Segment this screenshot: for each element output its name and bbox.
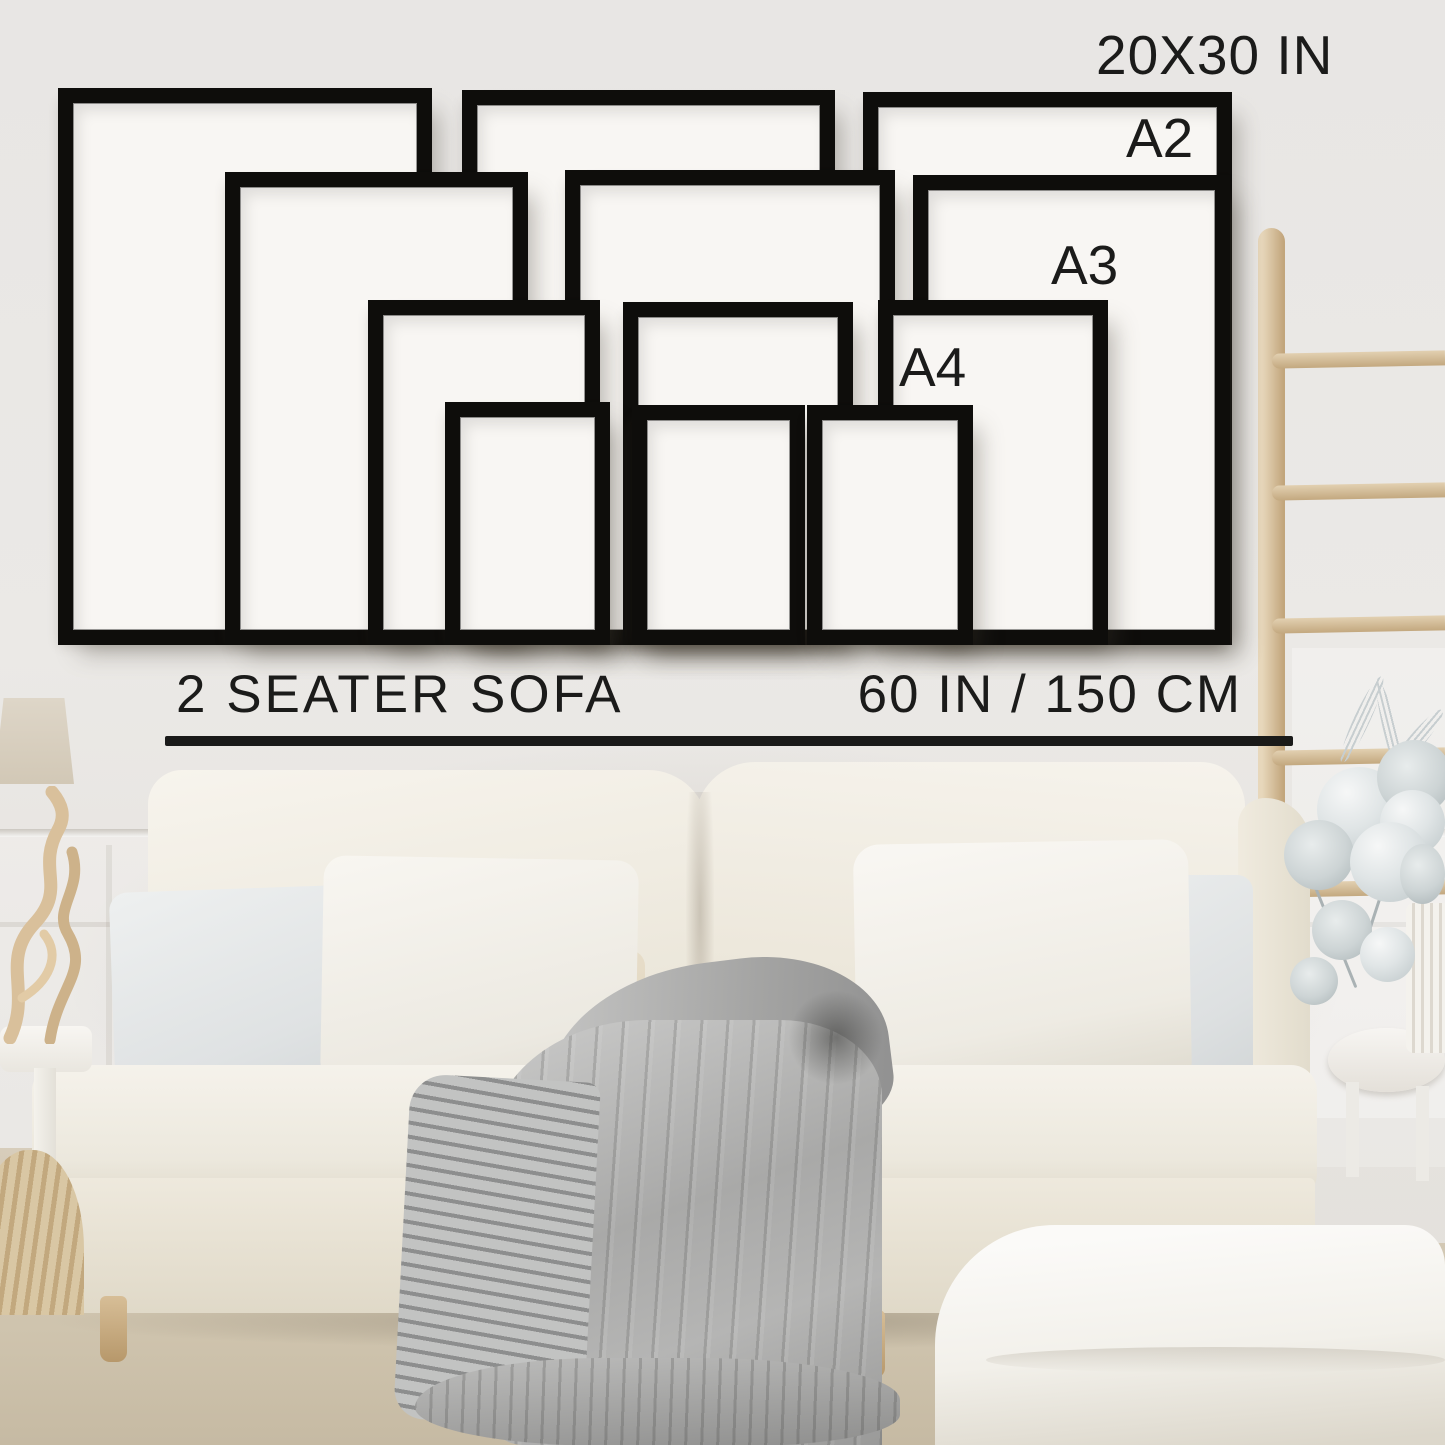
scale-divider-line	[165, 736, 1293, 746]
ottoman-cushion	[935, 1225, 1445, 1445]
throw-blanket-fold-shadow	[788, 990, 883, 1085]
frame-a4-middle	[632, 405, 805, 645]
pillow-white-right	[853, 839, 1192, 1093]
floor-lamp-shade	[0, 698, 74, 784]
frame-a4-right	[807, 405, 973, 645]
sofa-width-label: 60 IN / 150 CM	[858, 668, 1242, 721]
flower-arrangement	[1262, 672, 1445, 1072]
drooping-bloom	[1290, 957, 1338, 1005]
ladder-rung	[1272, 350, 1445, 368]
size-label-20x30: 20X30 IN	[1096, 28, 1333, 83]
size-label-a4: A4	[899, 340, 966, 395]
driftwood-sculpture	[0, 786, 124, 1044]
hydrangea-bloom	[1284, 820, 1354, 890]
throw-blanket-pile	[415, 1358, 900, 1445]
eucalyptus-leaf	[1400, 844, 1445, 904]
ladder-rung	[1272, 615, 1445, 633]
side-table-leg	[1346, 1082, 1359, 1177]
drooping-bloom	[1360, 927, 1415, 982]
side-table-leg	[1416, 1086, 1429, 1181]
size-guide-mockup: 20X30 IN A2 A3 A4 2 SEATER SOFA 60 IN / …	[0, 0, 1445, 1445]
size-label-a2: A2	[1126, 111, 1193, 166]
frame-a4-left	[445, 402, 610, 645]
sofa-scale-label: 2 SEATER SOFA	[176, 668, 623, 721]
sofa-leg	[100, 1296, 127, 1362]
ladder-rung	[1272, 482, 1445, 500]
size-label-a3: A3	[1051, 238, 1118, 293]
